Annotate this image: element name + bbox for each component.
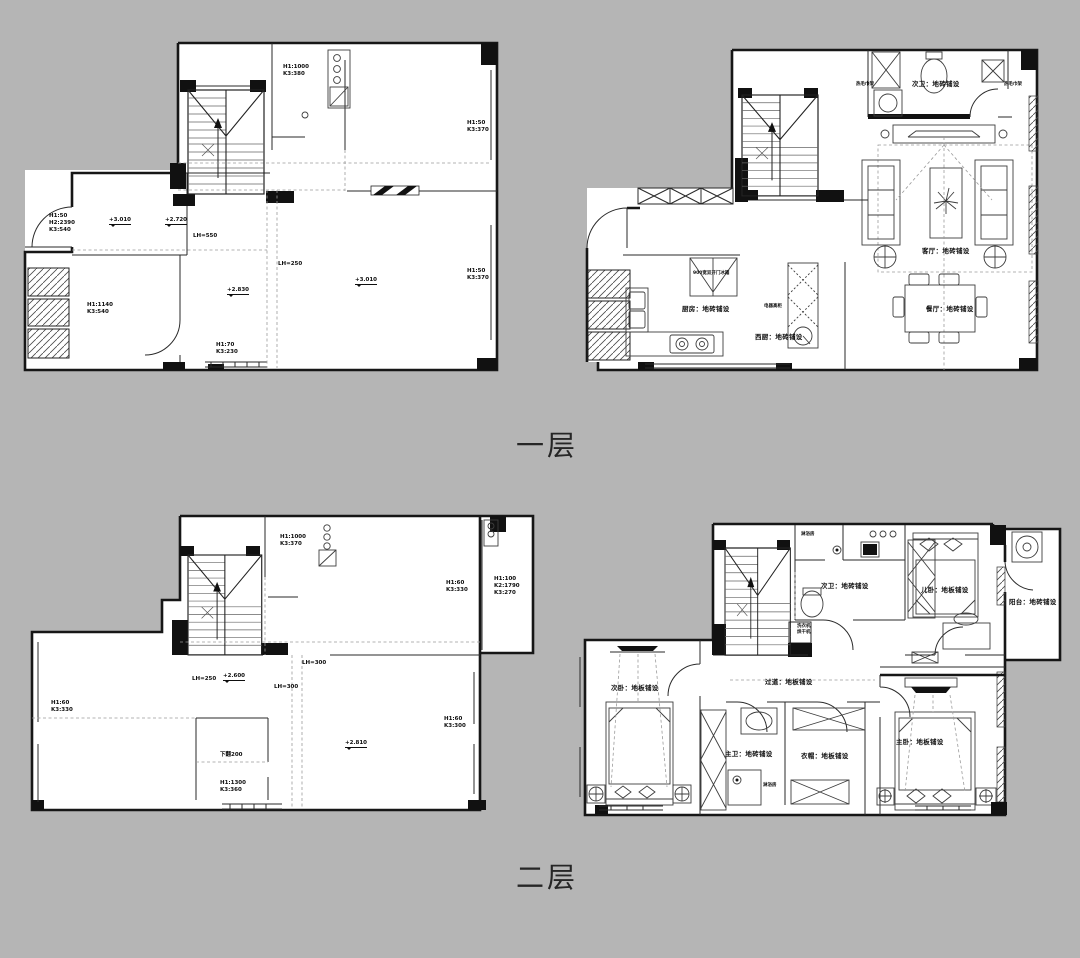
dimension-label: H1:60 K3:330 <box>51 700 73 714</box>
floor2-furnished-drawing <box>575 512 1075 842</box>
dimension-label: H1:50 K3:370 <box>467 120 489 134</box>
dimension-label: H1:1000 K3:370 <box>280 534 306 548</box>
dimension-label: H1:60 K3:300 <box>444 716 466 730</box>
dimension-label: 下翻200 <box>220 752 242 759</box>
floor2-furnished-plan: 淋浴房次卫：地砖铺设儿卧：地板铺设阳台：地砖铺设洗衣机 烘干机次卧：地板铺设过道… <box>575 512 1075 842</box>
glass-block-windows <box>28 268 69 358</box>
elevation-label: +3.010 <box>109 217 131 225</box>
floor1-caption: 一层 <box>516 432 578 460</box>
note-label: 900宽双开门冰箱 <box>693 271 729 277</box>
dimension-label: H1:1140 K3:540 <box>87 302 113 316</box>
curtain-window-strips <box>997 567 1005 802</box>
room-label: 次卧：地板铺设 <box>611 684 659 692</box>
dimension-label: LH=550 <box>193 233 217 240</box>
room-label: 衣帽：地板铺设 <box>801 752 849 760</box>
elevation-label: +2.720 <box>165 217 187 225</box>
note-label: 热毛巾架 <box>856 82 874 88</box>
dimension-label: H1:70 K3:230 <box>216 342 238 356</box>
room-label: 主卫：地砖铺设 <box>725 750 773 758</box>
room-label: 儿卧：地板铺设 <box>921 586 969 594</box>
room-label: 主卧：地板铺设 <box>896 738 944 746</box>
note-label: 淋浴房 <box>763 783 777 789</box>
room-label: 客厅：地砖铺设 <box>922 247 970 255</box>
floor2-structural-drawing <box>30 512 545 837</box>
note-label: 电器高柜 <box>764 304 782 310</box>
note-label: 洗衣机 烘干机 <box>797 624 811 636</box>
floor1-structural-drawing <box>15 10 535 400</box>
dimension-label: H1:1000 K3:380 <box>283 64 309 78</box>
room-label: 厨房：地砖铺设 <box>682 305 730 313</box>
plan-paper <box>585 524 1060 815</box>
note-label: 淋浴房 <box>801 532 815 538</box>
dimension-label: H1:1300 K3:360 <box>220 780 246 794</box>
dimension-label: H1:60 K3:330 <box>446 580 468 594</box>
dimension-label: LH=300 <box>302 660 326 667</box>
dimension-label: H1:100 K2:1790 K3:270 <box>494 576 520 597</box>
room-label: 次卫：地砖铺设 <box>912 80 960 88</box>
room-label: 餐厅：地砖铺设 <box>926 305 974 313</box>
room-label: 阳台：地砖铺设 <box>1009 598 1057 606</box>
elevation-label: +2.830 <box>227 287 249 295</box>
dimension-label: LH=250 <box>278 261 302 268</box>
room-label: 西厨：地砖铺设 <box>755 333 803 341</box>
plan-paper <box>32 516 533 810</box>
floor-plan-sheet: H1:1000 K3:380H1:50 K3:370+3.010+2.720LH… <box>0 0 1080 958</box>
dimension-label: LH=250 <box>192 676 216 683</box>
floor1-furnished-drawing <box>578 38 1070 380</box>
floor2-structural-plan: H1:1000 K3:370H1:60 K3:330H1:100 K2:1790… <box>30 512 545 837</box>
curtain-window-strips <box>1029 96 1038 343</box>
elevation-label: +3.010 <box>355 277 377 285</box>
room-label: 次卫：地砖铺设 <box>821 582 869 590</box>
floor1-structural-plan: H1:1000 K3:380H1:50 K3:370+3.010+2.720LH… <box>15 10 535 400</box>
plan-paper <box>25 43 497 370</box>
floor2-caption: 二层 <box>516 864 578 892</box>
elevation-label: +2.600 <box>223 673 245 681</box>
note-label: 热毛巾架 <box>1004 82 1022 88</box>
dimension-label: H1:50 K3:370 <box>467 268 489 282</box>
floor1-furnished-plan: 热毛巾架次卫：地砖铺设热毛巾架客厅：地砖铺设900宽双开门冰箱厨房：地砖铺设电器… <box>578 38 1070 380</box>
glass-block-windows <box>588 270 630 360</box>
dimension-label: LH=300 <box>274 684 298 691</box>
dimension-label: H1:50 H2:2390 K3:540 <box>49 213 75 234</box>
room-label: 过道：地板铺设 <box>765 678 813 686</box>
elevation-label: +2.810 <box>345 740 367 748</box>
